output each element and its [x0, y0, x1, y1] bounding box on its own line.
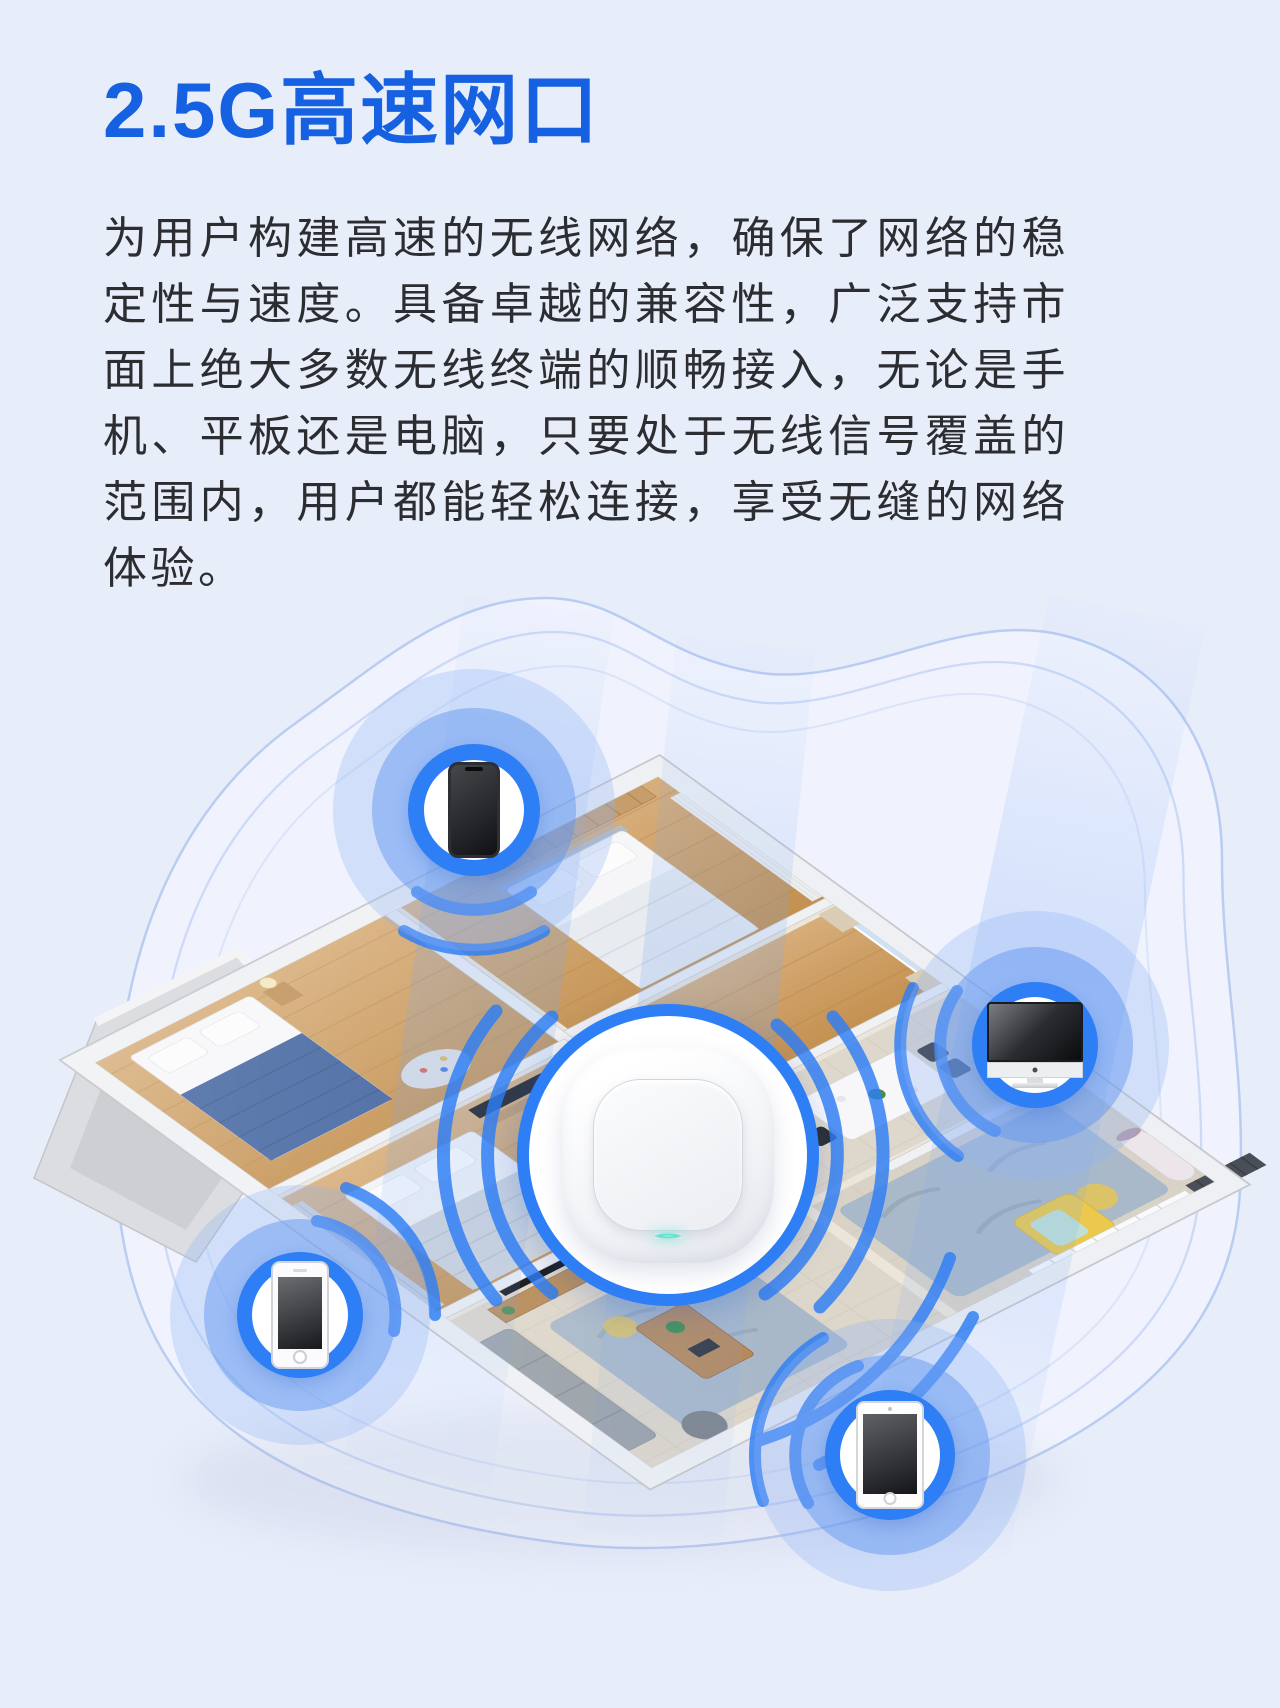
floorplan-graphic	[0, 0, 1280, 1708]
ap-status-led	[653, 1233, 683, 1239]
coverage-illustration	[0, 0, 1280, 1708]
mobile-phone-circle	[237, 1252, 363, 1378]
smartphone-circle	[408, 744, 540, 876]
tablet-icon	[856, 1401, 924, 1509]
wireless-ap-icon	[562, 1047, 774, 1263]
tablet-circle	[825, 1390, 955, 1520]
iphone-icon	[271, 1261, 329, 1369]
imac-icon	[987, 1002, 1083, 1088]
desktop-circle	[972, 982, 1098, 1108]
ap-top-cover	[593, 1079, 743, 1231]
smartphone-icon	[448, 762, 500, 858]
